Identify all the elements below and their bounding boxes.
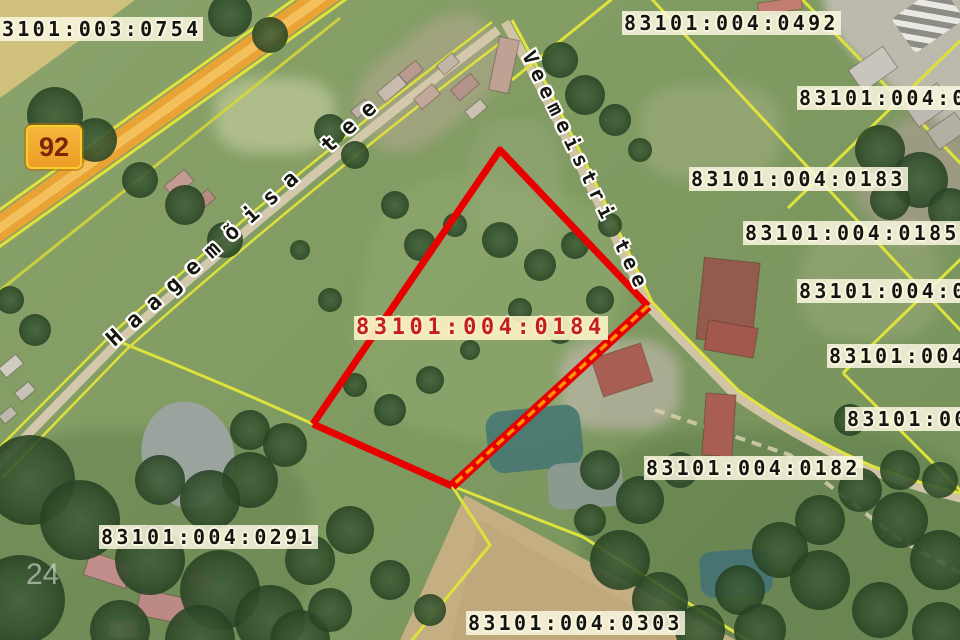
tree <box>381 191 409 219</box>
parcel-label: 83101:004:0183 <box>689 167 908 191</box>
building <box>702 393 736 457</box>
parcel-label: 83101:004:0303 <box>466 611 685 635</box>
tree <box>482 222 518 258</box>
tree <box>370 560 410 600</box>
tree <box>414 594 446 626</box>
building <box>0 406 17 424</box>
parcel-label: 83101:004:0291 <box>99 525 318 549</box>
tree <box>628 138 652 162</box>
building <box>489 37 520 94</box>
parcel-label: 83101:004:0 <box>797 279 960 303</box>
tree <box>263 423 307 467</box>
tree <box>374 394 406 426</box>
tree <box>912 602 960 640</box>
tree <box>0 286 24 314</box>
tree <box>599 104 631 136</box>
road-number-badge: 92 <box>26 125 82 169</box>
parcel-label: 83101:004 <box>827 344 960 368</box>
building <box>465 99 487 120</box>
tree <box>852 582 908 638</box>
building <box>15 382 36 402</box>
tree <box>208 0 252 37</box>
tree <box>565 75 605 115</box>
map-watermark: 24 <box>26 558 59 592</box>
tree <box>922 462 958 498</box>
tree <box>795 495 845 545</box>
tree <box>165 185 205 225</box>
tree <box>416 366 444 394</box>
field-wedge <box>0 0 135 98</box>
tree <box>135 455 185 505</box>
tree <box>880 450 920 490</box>
building <box>0 354 23 377</box>
selected-parcel-label[interactable]: 83101:004:0184 <box>354 316 608 340</box>
tree <box>122 162 158 198</box>
tree <box>252 17 288 53</box>
parcel-label: 3101:003:0754 <box>0 17 203 41</box>
tree <box>308 588 352 632</box>
parcel-label: 83101:004:0185 <box>743 221 960 245</box>
tree <box>580 450 620 490</box>
tree <box>19 314 51 346</box>
tree <box>790 550 850 610</box>
tree <box>290 240 310 260</box>
tree <box>180 470 240 530</box>
tree <box>326 506 374 554</box>
tree <box>574 504 606 536</box>
parcel-label: 83101:004:0492 <box>622 11 841 35</box>
aerial-cadastral-map[interactable]: 3101:003:0754 83101:004:0492 83101:004:0… <box>0 0 960 640</box>
parcel-label: 83101:004:0182 <box>644 456 863 480</box>
parcel-label: 83101:00 <box>845 407 960 431</box>
tree <box>586 286 614 314</box>
parcel-label: 83101:004:0 <box>797 86 960 110</box>
tree <box>318 288 342 312</box>
tree <box>460 340 480 360</box>
tree <box>524 249 556 281</box>
tree <box>616 476 664 524</box>
